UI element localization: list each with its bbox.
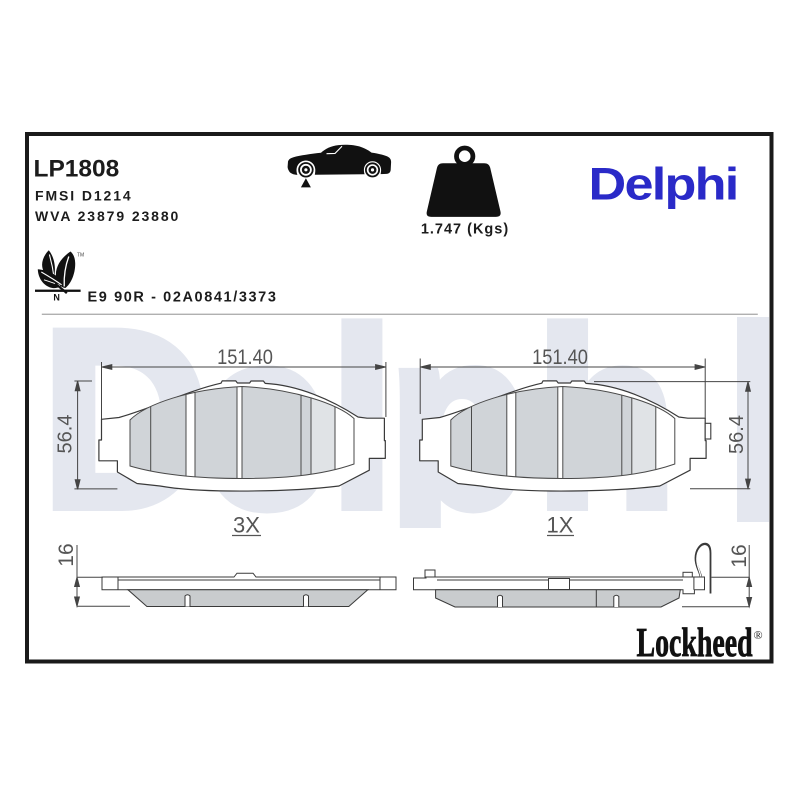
svg-text:Lockheed: Lockheed bbox=[637, 620, 754, 666]
svg-text:®: ® bbox=[754, 628, 763, 642]
svg-text:56.4: 56.4 bbox=[55, 415, 77, 454]
svg-text:1X: 1X bbox=[547, 513, 574, 538]
svg-text:16: 16 bbox=[728, 544, 751, 567]
svg-text:WVA 23879 23880: WVA 23879 23880 bbox=[35, 208, 180, 224]
svg-text:151.40: 151.40 bbox=[217, 346, 273, 370]
svg-text:N: N bbox=[53, 293, 60, 303]
svg-text:151.40: 151.40 bbox=[532, 346, 588, 370]
svg-text:56.4: 56.4 bbox=[726, 415, 748, 454]
svg-text:Delphi: Delphi bbox=[589, 160, 738, 210]
svg-text:3X: 3X bbox=[233, 513, 260, 538]
svg-text:16: 16 bbox=[55, 543, 78, 566]
svg-text:FMSI D1214: FMSI D1214 bbox=[35, 188, 133, 204]
svg-text:LP1808: LP1808 bbox=[34, 155, 120, 182]
svg-text:TM: TM bbox=[77, 252, 84, 258]
svg-text:E9 90R - 02A0841/3373: E9 90R - 02A0841/3373 bbox=[88, 290, 278, 306]
svg-text:1.747 (Kgs): 1.747 (Kgs) bbox=[421, 222, 509, 238]
